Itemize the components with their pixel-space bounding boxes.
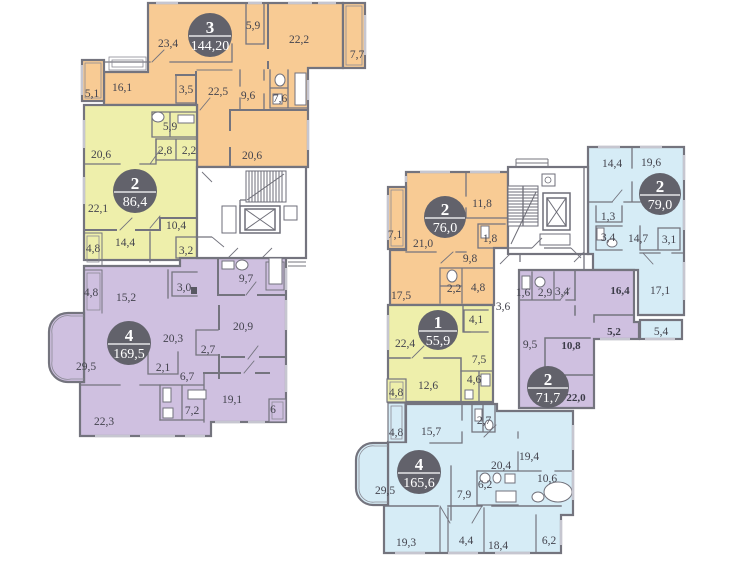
svg-text:10,4: 10,4 — [166, 220, 186, 232]
svg-text:9,6: 9,6 — [241, 90, 256, 102]
svg-text:2,7: 2,7 — [477, 415, 492, 427]
svg-text:4,8: 4,8 — [389, 387, 404, 399]
svg-text:20,4: 20,4 — [491, 460, 511, 472]
svg-text:4,8: 4,8 — [389, 427, 404, 439]
svg-text:19,1: 19,1 — [222, 394, 242, 406]
svg-text:21,0: 21,0 — [413, 238, 433, 250]
svg-text:22,2: 22,2 — [289, 34, 309, 46]
svg-text:19,3: 19,3 — [396, 537, 416, 549]
svg-text:2,7: 2,7 — [201, 344, 216, 356]
svg-text:22,4: 22,4 — [395, 338, 415, 350]
svg-text:1,6: 1,6 — [516, 287, 531, 299]
svg-text:4,4: 4,4 — [459, 535, 474, 547]
svg-text:5,1: 5,1 — [85, 88, 100, 100]
svg-text:9,8: 9,8 — [463, 253, 478, 265]
svg-text:9,5: 9,5 — [523, 339, 538, 351]
svg-text:3,5: 3,5 — [179, 84, 194, 96]
svg-text:2: 2 — [656, 177, 665, 196]
svg-text:1,3: 1,3 — [601, 211, 616, 223]
svg-text:6: 6 — [270, 404, 276, 416]
svg-text:10,6: 10,6 — [537, 473, 557, 485]
svg-text:14,4: 14,4 — [602, 158, 622, 170]
svg-text:4: 4 — [125, 326, 134, 345]
svg-text:4,6: 4,6 — [467, 374, 482, 386]
svg-text:2: 2 — [544, 370, 553, 389]
svg-text:76,0: 76,0 — [433, 221, 458, 236]
svg-text:17,5: 17,5 — [391, 290, 411, 302]
svg-text:23,4: 23,4 — [158, 38, 178, 50]
svg-text:7,1: 7,1 — [388, 229, 403, 241]
svg-text:7,2: 7,2 — [185, 405, 200, 417]
svg-text:16,1: 16,1 — [112, 82, 132, 94]
svg-text:3,4: 3,4 — [601, 232, 616, 244]
svg-text:55,9: 55,9 — [426, 334, 451, 349]
svg-text:20,6: 20,6 — [242, 150, 262, 162]
svg-text:14,7: 14,7 — [628, 233, 648, 245]
svg-text:2,2: 2,2 — [182, 145, 197, 157]
svg-text:5,9: 5,9 — [163, 121, 178, 133]
svg-text:1,8: 1,8 — [483, 233, 498, 245]
svg-text:165,6: 165,6 — [403, 476, 435, 491]
svg-text:169,5: 169,5 — [113, 347, 145, 362]
svg-text:3: 3 — [206, 18, 215, 37]
svg-text:22,5: 22,5 — [208, 86, 228, 98]
svg-text:7,9: 7,9 — [457, 489, 472, 501]
svg-text:2: 2 — [441, 200, 450, 219]
svg-text:22,1: 22,1 — [88, 203, 108, 215]
svg-text:17,1: 17,1 — [650, 285, 670, 297]
svg-text:144,20: 144,20 — [191, 39, 230, 54]
svg-text:4,8: 4,8 — [471, 282, 486, 294]
svg-text:10,8: 10,8 — [561, 340, 581, 352]
svg-text:2,8: 2,8 — [158, 145, 173, 157]
svg-text:71,7: 71,7 — [536, 391, 561, 406]
svg-text:22,0: 22,0 — [566, 392, 586, 404]
svg-text:20,3: 20,3 — [163, 333, 183, 345]
svg-text:22,3: 22,3 — [94, 416, 114, 428]
svg-text:7,7: 7,7 — [350, 49, 365, 61]
svg-text:6,7: 6,7 — [180, 371, 195, 383]
svg-text:2,2: 2,2 — [447, 283, 462, 295]
svg-text:5,4: 5,4 — [654, 326, 669, 338]
svg-text:7,5: 7,5 — [472, 354, 487, 366]
svg-text:6,2: 6,2 — [478, 479, 493, 491]
svg-text:79,0: 79,0 — [648, 198, 673, 213]
svg-text:15,7: 15,7 — [421, 426, 441, 438]
svg-text:2: 2 — [131, 174, 140, 193]
svg-text:20,9: 20,9 — [233, 321, 253, 333]
svg-text:4,8: 4,8 — [86, 243, 101, 255]
svg-text:29,5: 29,5 — [76, 361, 96, 373]
svg-text:4: 4 — [415, 455, 424, 474]
svg-text:12,6: 12,6 — [418, 380, 438, 392]
svg-text:19,4: 19,4 — [519, 451, 539, 463]
svg-text:5,2: 5,2 — [607, 326, 621, 338]
svg-text:4,8: 4,8 — [84, 287, 99, 299]
svg-text:14,4: 14,4 — [115, 237, 135, 249]
svg-text:7,6: 7,6 — [273, 93, 288, 105]
svg-text:15,2: 15,2 — [116, 292, 136, 304]
svg-text:3,4: 3,4 — [555, 286, 570, 298]
svg-text:29,5: 29,5 — [375, 485, 395, 497]
svg-text:11,8: 11,8 — [472, 198, 492, 210]
svg-text:2,9: 2,9 — [538, 287, 553, 299]
svg-text:18,4: 18,4 — [488, 540, 508, 552]
svg-text:2,1: 2,1 — [156, 362, 171, 374]
svg-text:3,0: 3,0 — [177, 282, 192, 294]
svg-text:6,2: 6,2 — [542, 535, 557, 547]
svg-text:3,6: 3,6 — [496, 301, 511, 313]
svg-text:19,6: 19,6 — [641, 157, 661, 169]
svg-text:86,4: 86,4 — [123, 195, 148, 210]
svg-text:5,9: 5,9 — [246, 20, 261, 32]
svg-text:3,1: 3,1 — [662, 234, 677, 246]
svg-text:9,7: 9,7 — [239, 273, 254, 285]
svg-text:20,6: 20,6 — [91, 149, 111, 161]
svg-text:16,4: 16,4 — [610, 285, 630, 297]
svg-text:4,1: 4,1 — [469, 314, 484, 326]
svg-text:3,2: 3,2 — [179, 245, 194, 257]
svg-text:1: 1 — [434, 313, 443, 332]
